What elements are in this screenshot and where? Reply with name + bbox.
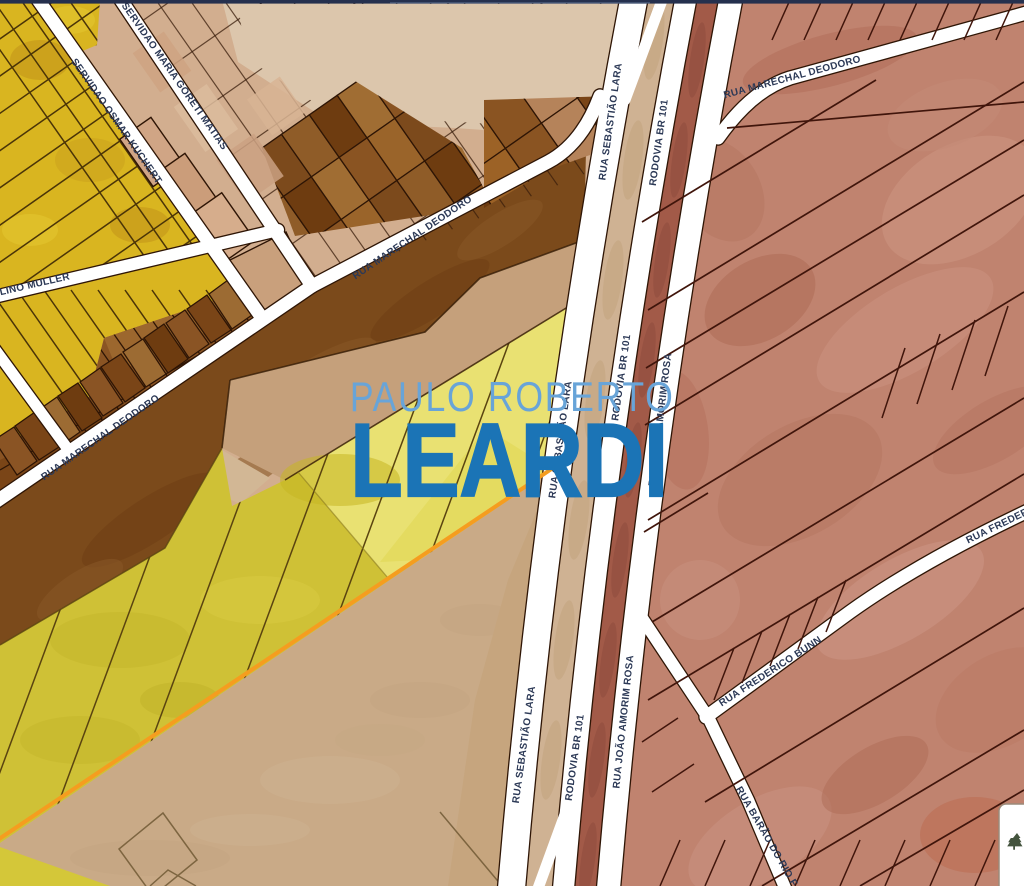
svg-text:LEARDI: LEARDI: [351, 403, 668, 519]
